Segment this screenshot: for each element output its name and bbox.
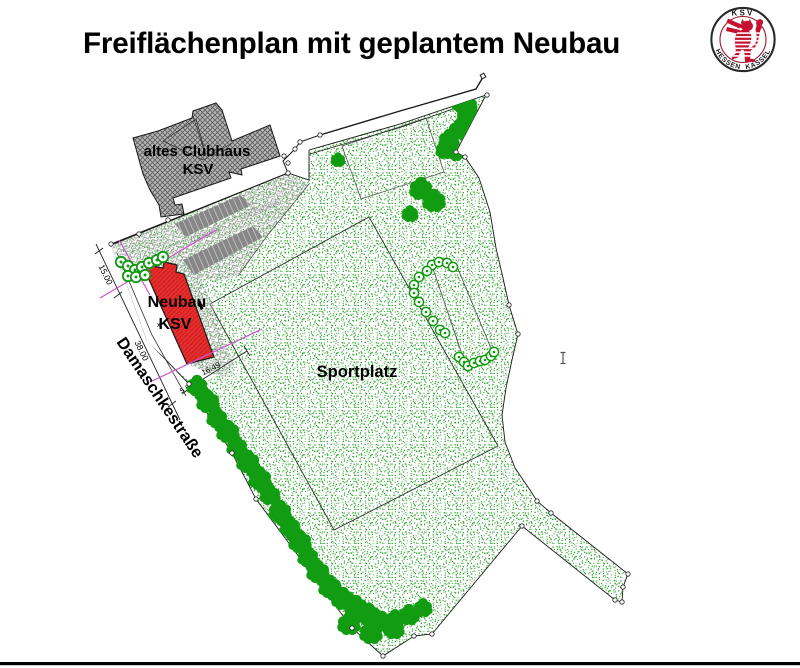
svg-text:altes Clubhaus: altes Clubhaus xyxy=(144,143,251,160)
svg-text:Freiflächenplan mit geplantem: Freiflächenplan mit geplantem Neubau xyxy=(83,27,620,60)
svg-text:x: x xyxy=(157,322,161,329)
svg-text:Neubau: Neubau xyxy=(148,294,207,311)
svg-text:KSV: KSV xyxy=(183,161,214,178)
svg-text:Sportplatz: Sportplatz xyxy=(317,363,398,381)
svg-text:KSV: KSV xyxy=(731,9,754,18)
svg-text:KSV: KSV xyxy=(159,316,192,333)
